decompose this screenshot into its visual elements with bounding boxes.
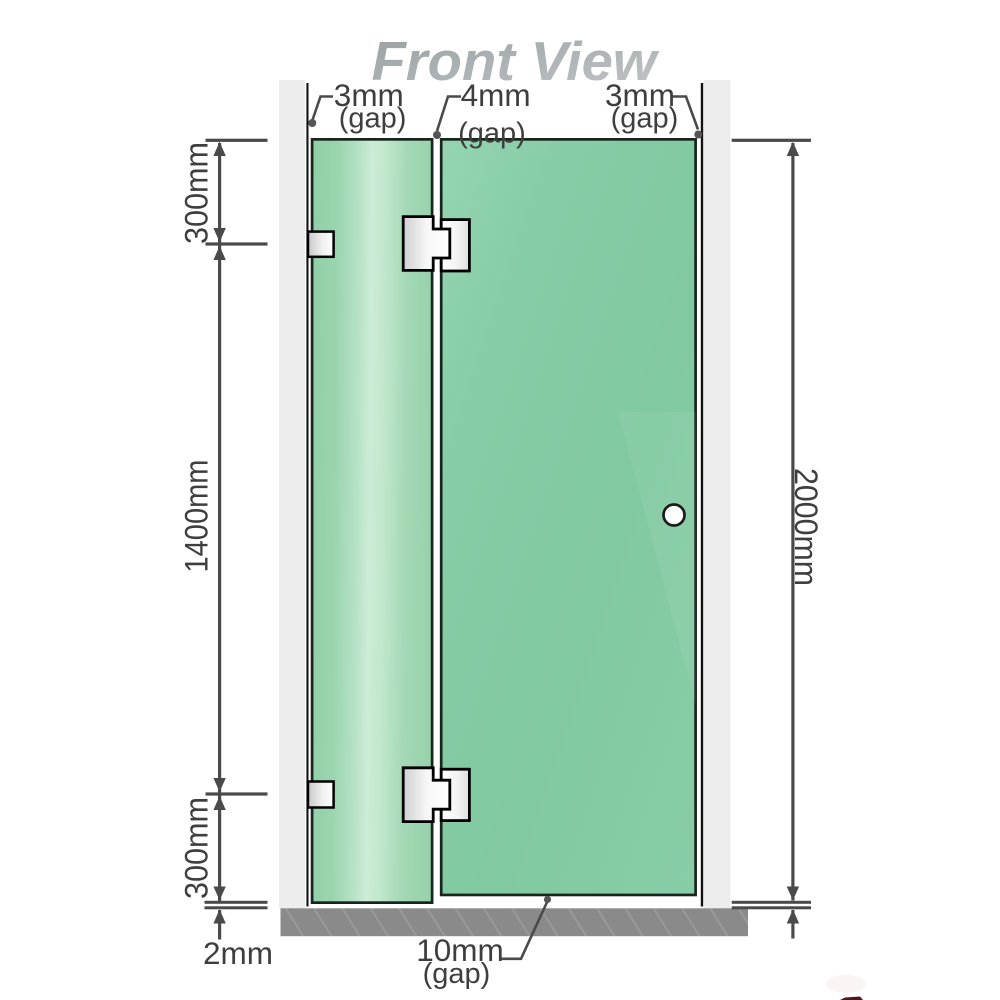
svg-text:(gap): (gap) [423,958,491,990]
svg-text:4mm: 4mm [461,77,531,113]
svg-text:2mm: 2mm [203,935,273,971]
svg-text:(gap): (gap) [339,103,407,135]
svg-text:1400mm: 1400mm [179,460,215,573]
svg-text:2000mm: 2000mm [788,468,824,586]
svg-text:300mm: 300mm [179,797,215,899]
svg-text:(gap): (gap) [458,118,526,150]
svg-text:(gap): (gap) [611,103,679,135]
svg-text:300mm: 300mm [179,142,215,244]
